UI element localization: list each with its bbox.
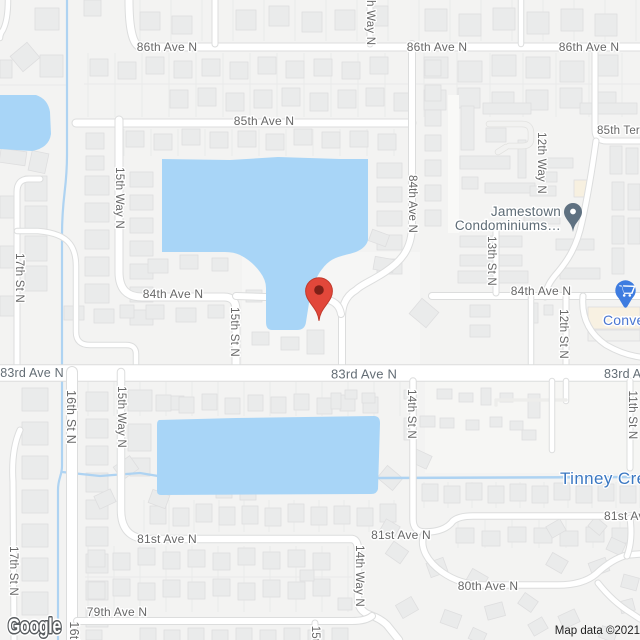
svg-text:85th Terr: 85th Terr [597, 125, 640, 137]
svg-text:15t: 15t [309, 626, 321, 640]
svg-text:16th: 16th [67, 621, 81, 640]
svg-text:15th Way N: 15th Way N [113, 167, 125, 229]
svg-text:14th St N: 14th St N [405, 389, 417, 439]
svg-text:Condominiums…: Condominiums… [455, 218, 561, 233]
svg-text:17th St N: 17th St N [7, 546, 19, 596]
svg-text:11th St N: 11th St N [626, 391, 638, 440]
svg-text:16th St N: 16th St N [64, 390, 78, 444]
svg-text:86th Ave N: 86th Ave N [137, 40, 198, 54]
svg-text:84th Ave N: 84th Ave N [406, 175, 418, 233]
svg-text:15th Way N: 15th Way N [115, 386, 127, 448]
svg-text:13th St N: 13th St N [485, 236, 497, 286]
svg-text:83rd Ave N: 83rd Ave N [331, 367, 397, 382]
svg-text:85th Ave N: 85th Ave N [234, 114, 295, 128]
svg-text:86th Ave N: 86th Ave N [559, 40, 620, 54]
svg-text:80th Ave N: 80th Ave N [458, 579, 519, 593]
svg-text:83rd Ave N: 83rd Ave N [0, 366, 64, 380]
svg-text:17th St N: 17th St N [13, 253, 25, 303]
svg-text:Conveni: Conveni [603, 312, 640, 328]
svg-text:15th St N: 15th St N [228, 307, 240, 357]
svg-text:84th Ave N: 84th Ave N [511, 284, 572, 298]
svg-text:Jamestown: Jamestown [491, 204, 561, 219]
svg-text:81st Ave: 81st Ave [604, 509, 640, 523]
svg-text:14th Way N: 14th Way N [353, 545, 365, 607]
svg-text:81st Ave N: 81st Ave N [137, 532, 197, 546]
svg-text:81st Ave N: 81st Ave N [371, 528, 431, 542]
svg-text:12th St N: 12th St N [557, 309, 569, 359]
svg-text:84th Ave N: 84th Ave N [143, 287, 204, 301]
svg-text:12th Way N: 12th Way N [535, 132, 547, 194]
svg-text:Tinney Creek: Tinney Creek [560, 469, 640, 488]
svg-text:Google: Google [8, 615, 61, 638]
svg-text:79th Ave N: 79th Ave N [87, 605, 148, 619]
svg-text:83rd Av: 83rd Av [604, 367, 640, 381]
svg-text:86th Ave N: 86th Ave N [407, 40, 468, 54]
svg-text:Map data ©2021: Map data ©2021 [555, 625, 640, 637]
svg-text:th Way N: th Way N [364, 0, 376, 45]
